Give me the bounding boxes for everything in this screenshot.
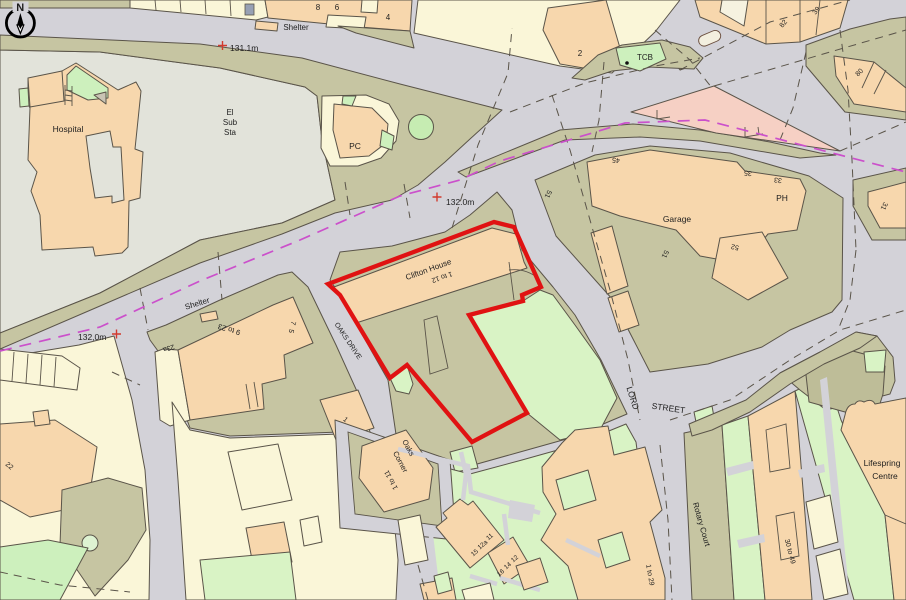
svg-text:4: 4 [386,13,391,22]
svg-text:132.0m: 132.0m [446,197,474,207]
svg-text:PH: PH [776,193,788,203]
svg-text:35: 35 [744,169,753,177]
svg-text:Sub: Sub [223,118,238,127]
svg-text:Hospital: Hospital [53,124,84,134]
svg-text:El: El [226,108,233,117]
svg-text:Centre: Centre [872,471,898,481]
svg-text:N: N [16,2,24,14]
svg-text:33: 33 [774,176,783,184]
svg-text:45: 45 [612,156,621,164]
svg-text:8: 8 [316,3,321,12]
svg-text:6: 6 [335,3,340,12]
svg-text:Garage: Garage [663,214,692,224]
svg-text:131.1m: 131.1m [230,43,258,53]
svg-text:Sta: Sta [224,128,237,137]
svg-text:TCB: TCB [637,53,653,62]
svg-text:132,0m: 132,0m [78,332,106,342]
svg-text:Lifespring: Lifespring [864,458,901,468]
svg-text:PC: PC [349,141,361,151]
svg-text:2: 2 [578,49,583,58]
svg-text:Shelter: Shelter [283,23,309,32]
